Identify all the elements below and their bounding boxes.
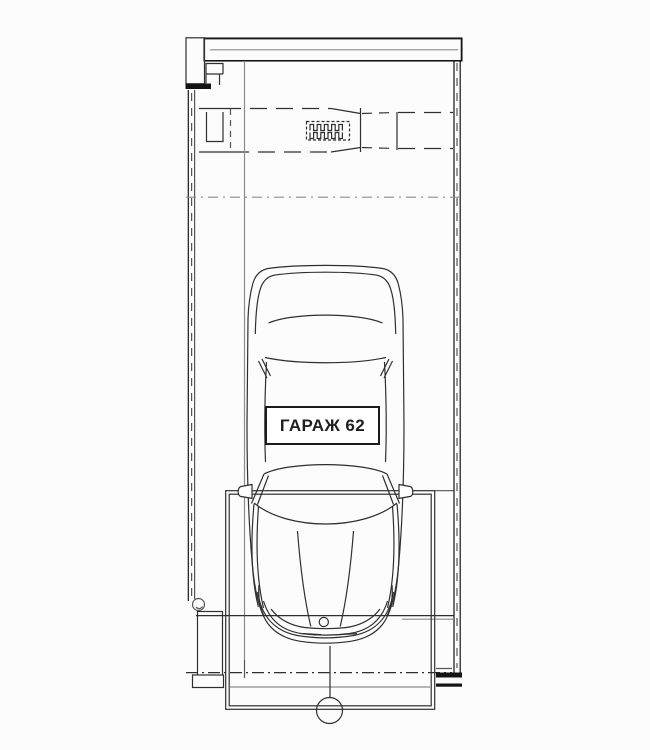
floor-plan-page: ГАРАЖ 62 <box>0 0 650 750</box>
left-wall <box>188 90 194 601</box>
car-top-view <box>238 265 413 643</box>
garage-label-box: ГАРАЖ 62 <box>265 406 380 445</box>
door-jamb-right <box>436 669 462 687</box>
floor-plan-drawing <box>0 0 650 750</box>
door-spring-mechanism <box>307 122 350 141</box>
top-wall-hatched <box>204 38 462 61</box>
car-mirror-right <box>399 485 413 499</box>
wall-niche-detail <box>206 64 223 142</box>
circle-marker <box>317 698 343 724</box>
overhead-structure-dashed <box>199 108 453 152</box>
car-mirror-left <box>238 485 252 499</box>
door-jamb-left <box>193 599 224 688</box>
right-wall <box>454 60 460 673</box>
entrance-axis-marker <box>317 646 343 724</box>
garage-label-text: ГАРАЖ 62 <box>280 416 365 436</box>
car-emblem <box>319 617 328 626</box>
